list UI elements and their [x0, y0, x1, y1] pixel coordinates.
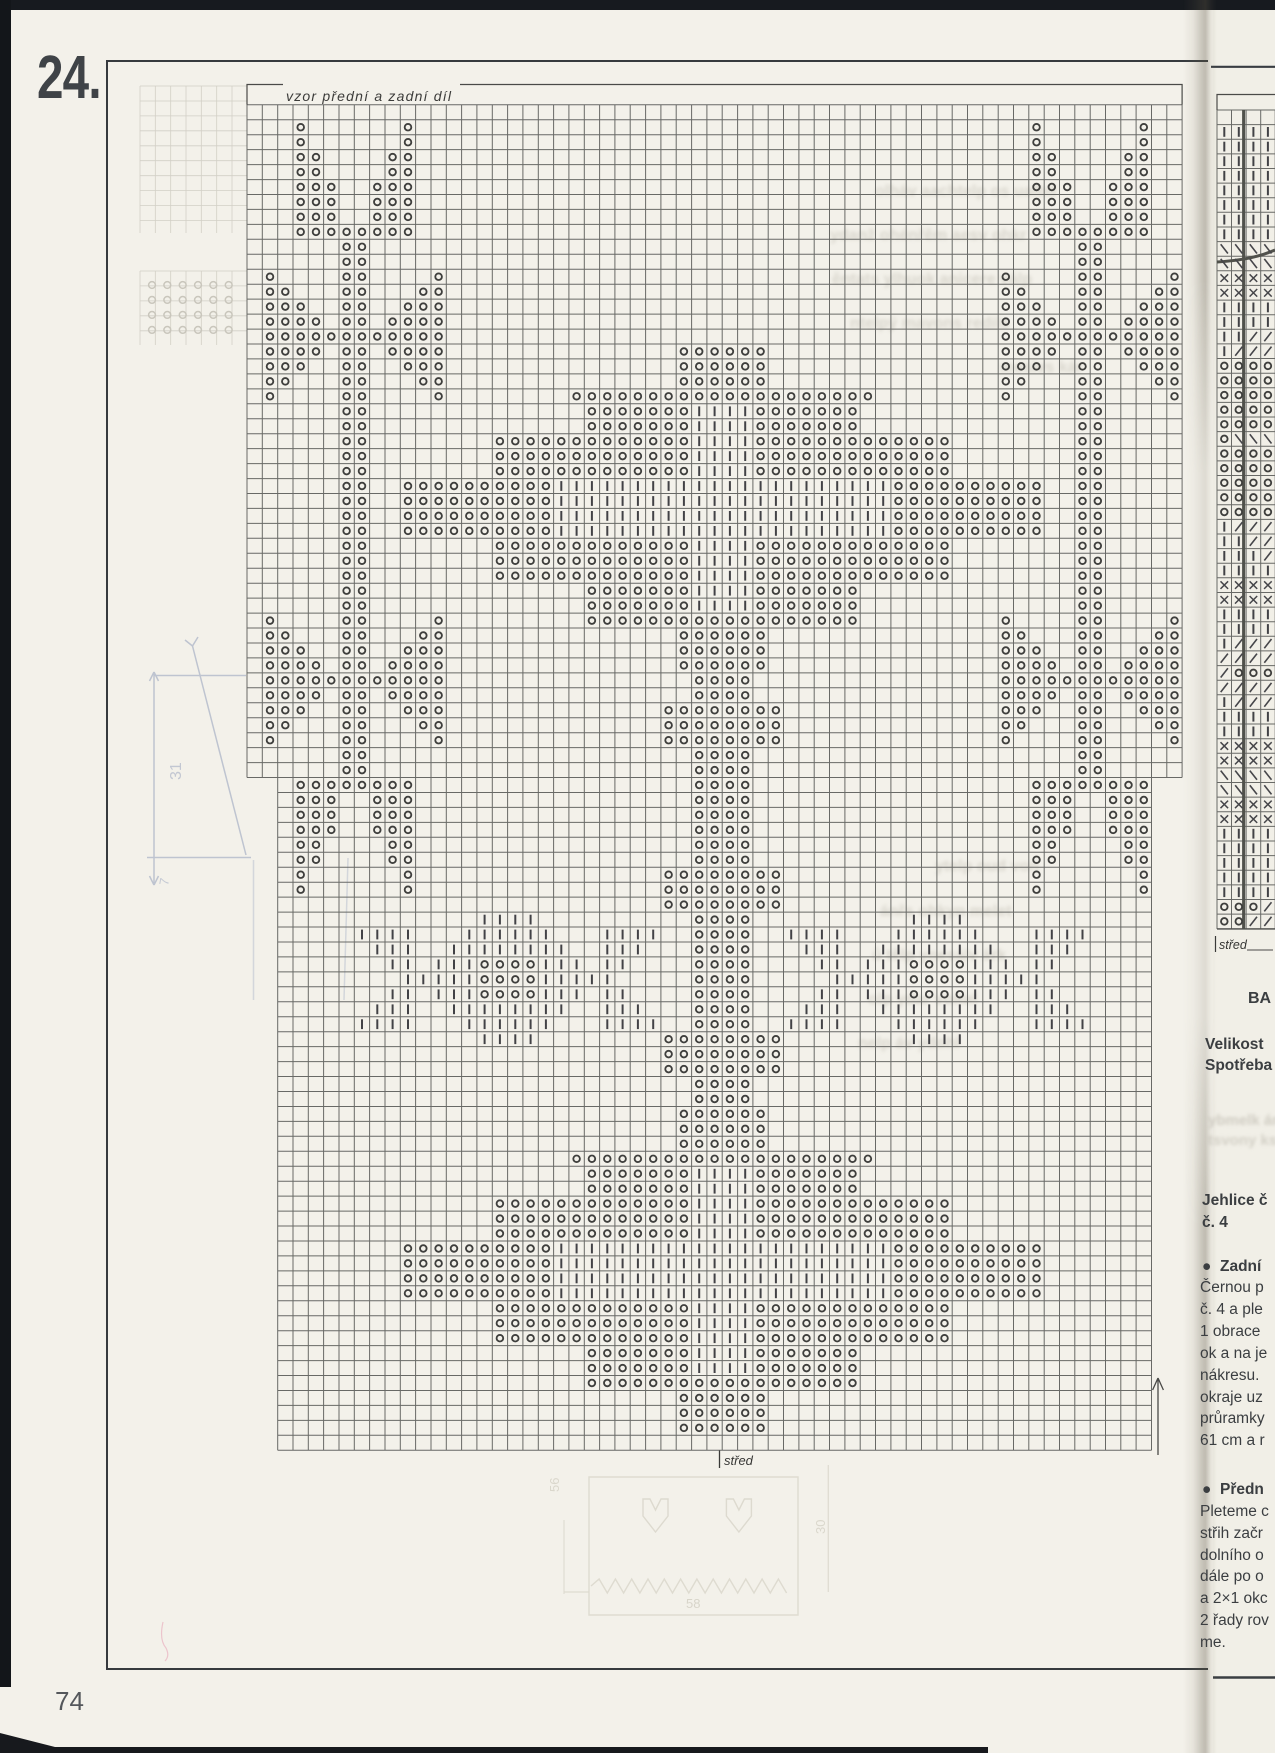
svg-text:ů tělp ynesálv árk: ů tělp ynesálv árk: [872, 947, 1006, 964]
svg-text:56: 56: [547, 1478, 562, 1492]
svg-text:vzor přední a zadní díl: vzor přední a zadní díl: [286, 88, 452, 104]
svg-text:střed: střed: [724, 1453, 754, 1468]
svg-text:30: 30: [813, 1520, 828, 1534]
svg-text:ánřs ohkyn melet: ánřs ohkyn melet: [880, 903, 1012, 920]
svg-text:58: 58: [686, 1596, 700, 1611]
svg-text:olp ydar vониl: olp ydar vониl: [868, 991, 977, 1008]
svg-text:ěntats ylhuok anicere válp: ěntats ylhuok anicere válp: [832, 271, 1032, 288]
svg-text:31: 31: [168, 762, 185, 780]
svg-text:střed: střed: [1219, 938, 1248, 952]
svg-text:ydanž ohénřěm aesv ohkr: ydanž ohénřěm aesv ohkr: [830, 227, 1027, 244]
svg-text:7: 7: [156, 877, 172, 887]
svg-text:ytelp oud von: ytelp oud von: [935, 858, 1039, 875]
